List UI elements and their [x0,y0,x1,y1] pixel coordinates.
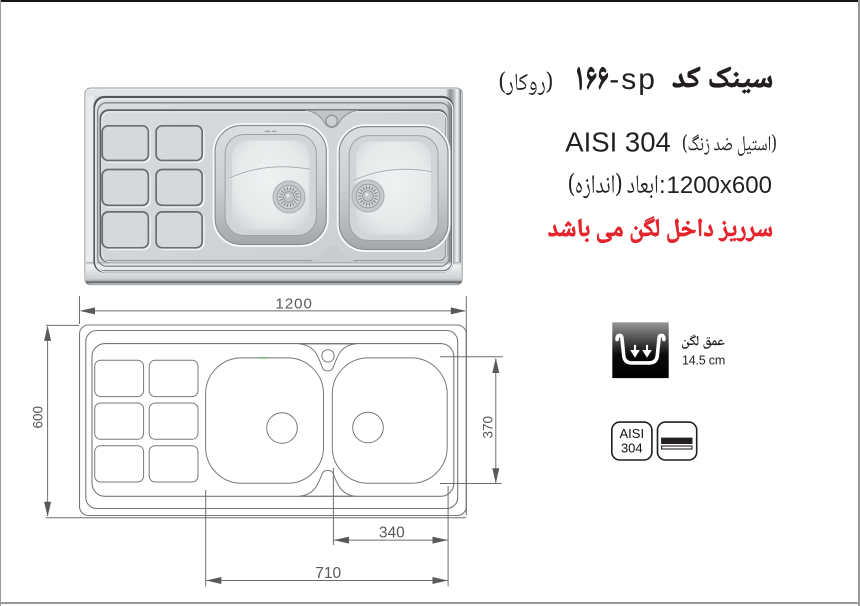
svg-text:304: 304 [621,441,643,456]
svg-text:AISI: AISI [620,426,645,441]
svg-text:14.5 cm: 14.5 cm [682,353,725,367]
